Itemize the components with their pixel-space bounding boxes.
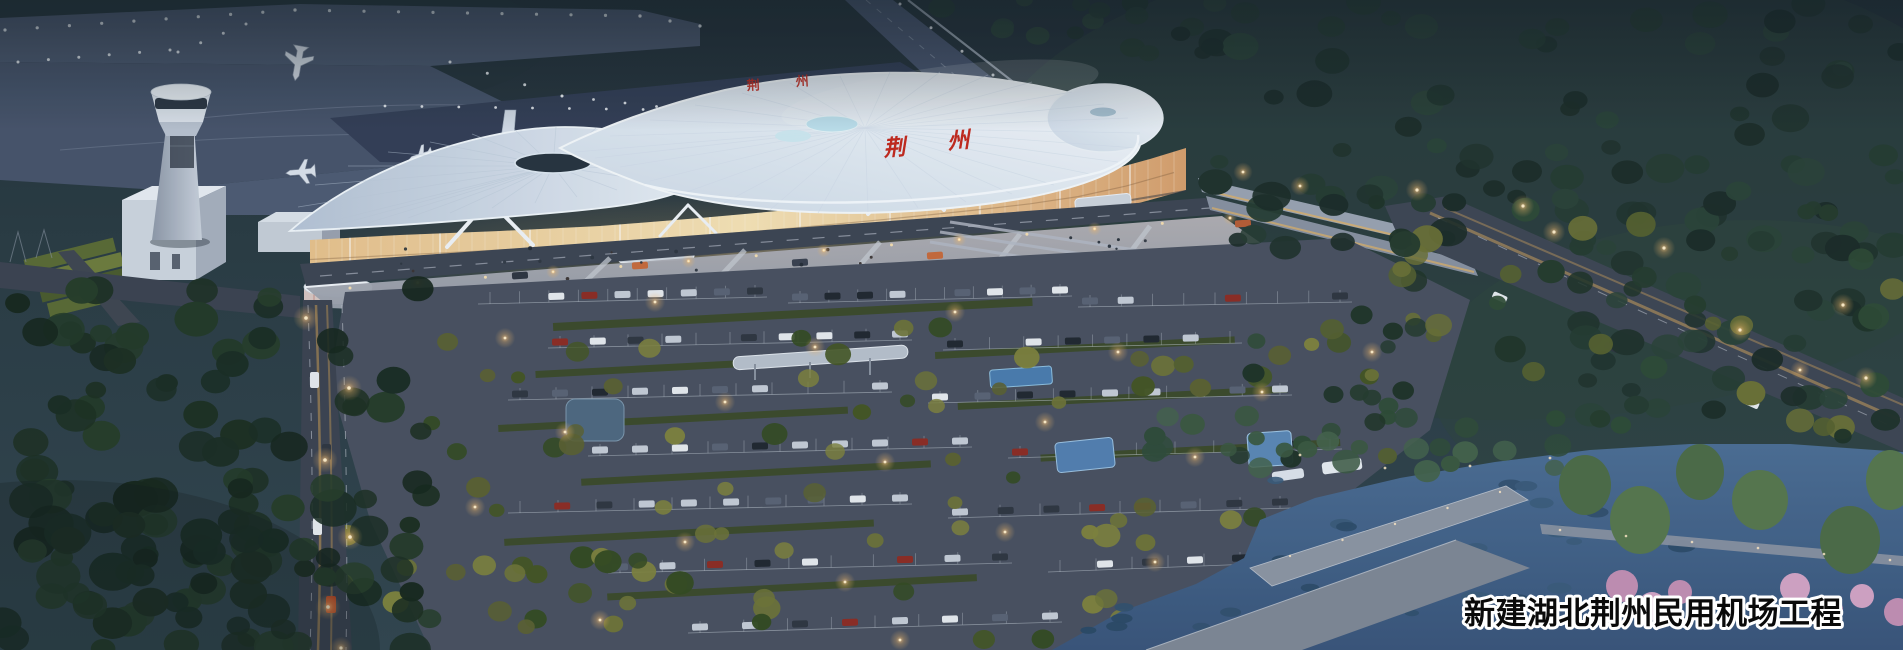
cool-grade xyxy=(0,0,1903,650)
rendering-canvas: 荆 州 荆 州 xyxy=(0,0,1903,650)
airport-rendering: 荆 州 荆 州 xyxy=(0,0,1903,650)
caption-text: 新建湖北荆州民用机场工程 xyxy=(1464,596,1842,632)
